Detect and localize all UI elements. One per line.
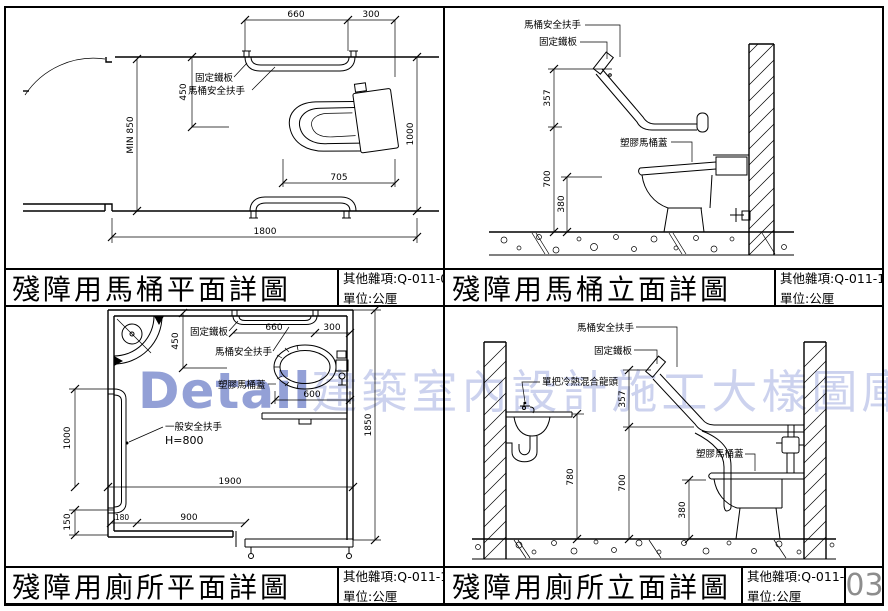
sheet-center-divider (443, 6, 445, 606)
drawing-sheet: 660 300 450 固定鐵板 馬桶安全扶手 705 1000 (0, 0, 888, 611)
